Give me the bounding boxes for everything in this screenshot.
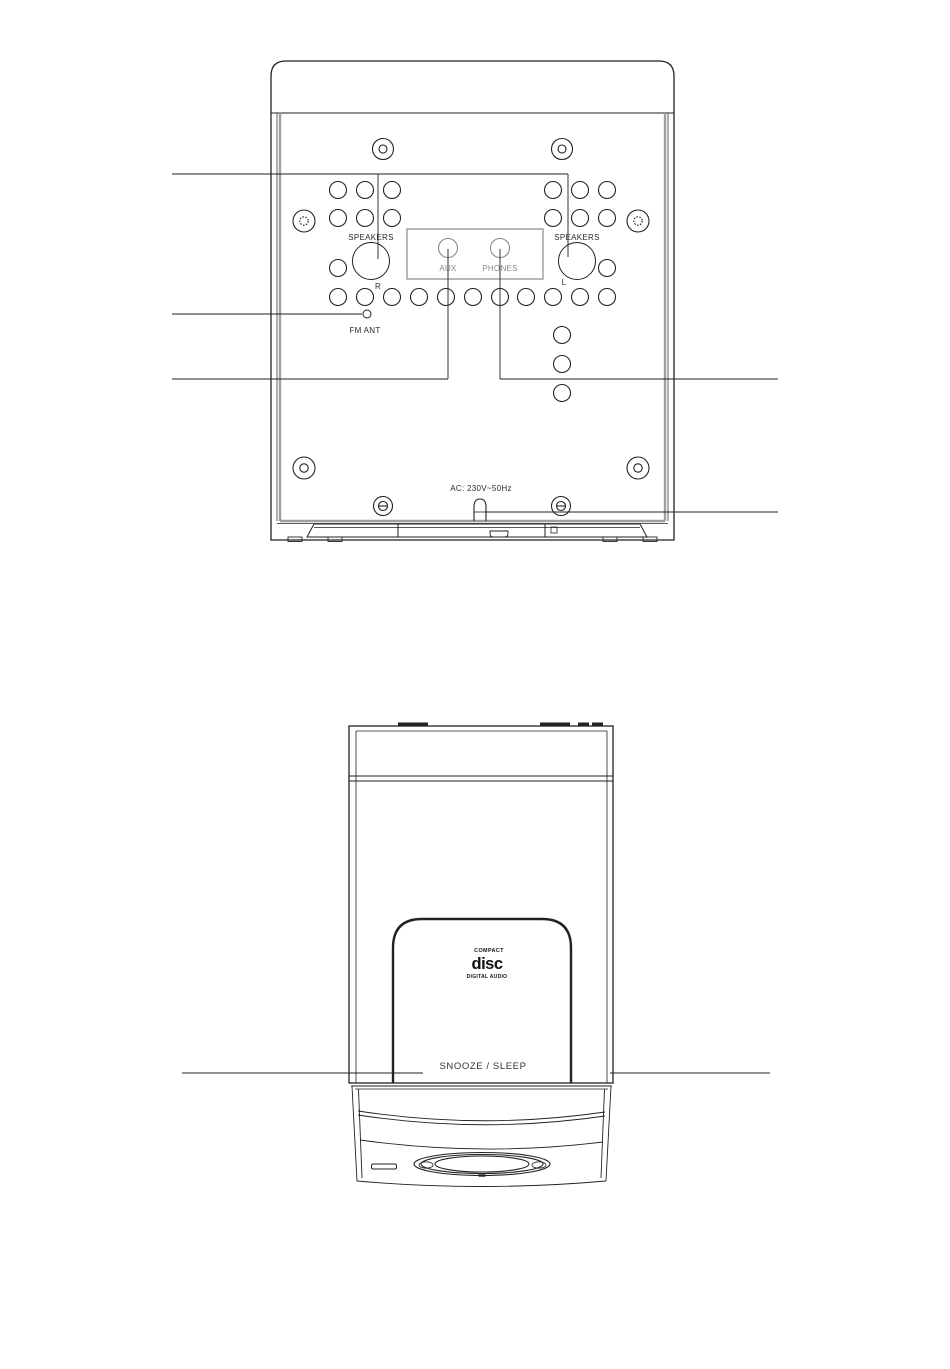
front-face [351, 1086, 612, 1187]
vent-hole [554, 356, 571, 373]
vent-hole [330, 210, 347, 227]
manual-illustration: SPEAKERS R SPEAKERS L AUX PHONES FM ANT … [0, 0, 950, 1369]
top-case-outline [349, 726, 613, 1083]
rear-callout-lines [172, 174, 778, 512]
vent-hole [545, 289, 562, 306]
vent-hole [518, 289, 535, 306]
rear-view-diagram: SPEAKERS R SPEAKERS L AUX PHONES FM ANT … [172, 61, 778, 542]
vent-hole [357, 289, 374, 306]
ac-rating-label: AC: 230V~50Hz [450, 484, 512, 493]
snooze-sleep-label: SNOOZE / SLEEP [439, 1061, 526, 1072]
slot-screw-icon [552, 497, 571, 516]
power-cord-grommet: AC: 230V~50Hz [450, 484, 512, 521]
foot [288, 537, 302, 542]
top-view-diagram: COMPACT disc DIGITAL AUDIO SNOOZE / SLEE… [182, 723, 770, 1187]
vent-hole [554, 327, 571, 344]
volume-knob-top [414, 1153, 550, 1177]
cd-logo-digital-audio: DIGITAL AUDIO [467, 974, 508, 980]
cd-logo-compact: COMPACT [474, 948, 504, 954]
speakers-left-label: SPEAKERS [554, 233, 600, 242]
callout-line-speakers [172, 174, 568, 259]
base-bar-outline [307, 524, 647, 537]
screw-icon [627, 457, 649, 479]
vent-hole [384, 210, 401, 227]
vent-hole [330, 260, 347, 277]
vent-hole [330, 182, 347, 199]
vent-hole [572, 210, 589, 227]
vent-hole [545, 182, 562, 199]
vent-hole [384, 289, 401, 306]
vent-hole [357, 182, 374, 199]
foot [643, 537, 657, 542]
cd-door [393, 919, 571, 1083]
screw-icon [293, 457, 315, 479]
vent-holes [330, 182, 616, 402]
vent-hole [599, 182, 616, 199]
screws [293, 139, 649, 516]
speaker-terminal-right: SPEAKERS R [348, 233, 394, 291]
vent-hole [411, 289, 428, 306]
jack-panel-box [407, 229, 543, 279]
speaker-knob-l [559, 243, 596, 280]
vent-hole [465, 289, 482, 306]
speaker-channel-r: R [375, 282, 381, 291]
foot [603, 537, 617, 542]
base-small-notch [551, 527, 557, 533]
screw-icon [293, 210, 315, 232]
screw-icon [627, 210, 649, 232]
vent-hole [599, 289, 616, 306]
speaker-terminal-left: SPEAKERS L [554, 233, 600, 287]
vent-hole [384, 182, 401, 199]
front-bottom-arc [357, 1181, 606, 1187]
cd-logo-disc: disc [471, 955, 502, 973]
base-center-tab [490, 531, 508, 537]
speaker-channel-l: L [562, 278, 567, 287]
front-arc-upper [358, 1111, 605, 1125]
jack-panel: AUX PHONES [407, 229, 543, 279]
vent-hole [330, 289, 347, 306]
front-right-edge [601, 1086, 611, 1181]
foot [328, 537, 342, 542]
vent-hole [572, 289, 589, 306]
screw-icon [552, 139, 573, 160]
cd-logo: COMPACT disc DIGITAL AUDIO [467, 948, 508, 980]
vent-hole [572, 182, 589, 199]
vent-hole [599, 210, 616, 227]
screw-icon [373, 139, 394, 160]
rear-case-outline [271, 61, 674, 540]
speaker-knob-r [353, 243, 390, 280]
manual-page: SPEAKERS R SPEAKERS L AUX PHONES FM ANT … [0, 0, 950, 1369]
fm-ant-label: FM ANT [349, 326, 380, 335]
vent-hole [357, 210, 374, 227]
vent-hole [438, 289, 455, 306]
grommet-outline [474, 499, 486, 521]
vent-hole [599, 260, 616, 277]
slot-screw-icon [374, 497, 393, 516]
front-arc-lower [360, 1140, 603, 1149]
speakers-right-label: SPEAKERS [348, 233, 394, 242]
fm-antenna-hole [363, 310, 371, 318]
rear-base [288, 524, 657, 542]
front-left-edge [352, 1086, 362, 1181]
front-small-button [372, 1164, 397, 1169]
vent-hole [545, 210, 562, 227]
callout-line-phones [500, 249, 778, 379]
vent-hole [554, 385, 571, 402]
